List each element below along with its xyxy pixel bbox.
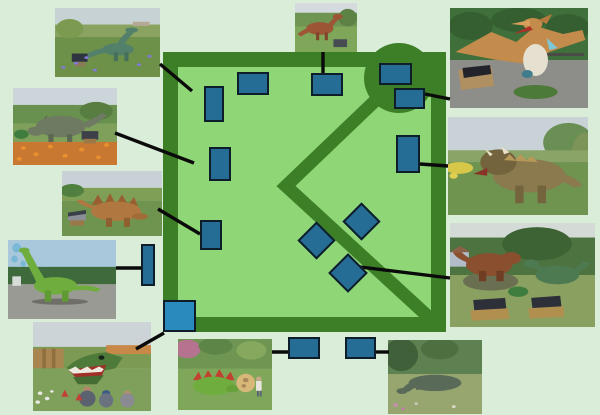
photo-brachiosaurus bbox=[8, 240, 116, 319]
marker-diamond-1 bbox=[342, 202, 380, 240]
marker-right-2 bbox=[396, 135, 420, 173]
marker-bottom-1 bbox=[288, 337, 320, 359]
connector-lines bbox=[0, 0, 600, 415]
photo-pteranodon bbox=[450, 8, 588, 108]
marker-corner-gate bbox=[163, 300, 196, 332]
line-ankylosaurus bbox=[115, 133, 194, 163]
photo-triceratops bbox=[448, 117, 588, 215]
photo-ankylosaurus bbox=[13, 88, 117, 165]
marker-top-1 bbox=[237, 72, 269, 95]
photo-dinosaur-pair bbox=[450, 223, 595, 327]
dinosaur-park-map-infographic bbox=[0, 0, 600, 415]
photo-stegosaurus bbox=[62, 171, 162, 236]
marker-top-2 bbox=[311, 73, 343, 96]
photo-trex-head bbox=[33, 322, 151, 411]
location-markers bbox=[0, 0, 600, 415]
map-outer-border bbox=[163, 52, 446, 332]
marker-outside-left bbox=[141, 244, 155, 286]
line-trex-gate bbox=[136, 333, 164, 349]
line-dino-pair bbox=[352, 266, 450, 278]
marker-diamond-3 bbox=[328, 253, 368, 293]
line-pteranodon bbox=[425, 94, 450, 99]
map-plaza-circle bbox=[364, 43, 434, 113]
line-triceratops bbox=[420, 164, 448, 166]
marker-top-left bbox=[204, 86, 224, 122]
photo-dilophosaurus bbox=[55, 8, 160, 77]
marker-left-2 bbox=[200, 220, 222, 250]
photo-stegosaurus-playground bbox=[178, 339, 272, 410]
marker-plaza-circle bbox=[379, 63, 412, 85]
marker-bottom-2 bbox=[345, 337, 376, 359]
marker-right-1 bbox=[394, 88, 425, 109]
line-stegosaurus bbox=[158, 209, 200, 234]
line-dilophosaurus bbox=[160, 64, 192, 91]
photo-lying-dinosaur bbox=[388, 340, 482, 414]
marker-diamond-2 bbox=[297, 221, 335, 259]
map-lawn bbox=[178, 67, 431, 317]
photo-callouts bbox=[0, 0, 600, 415]
photo-carnotaurus bbox=[295, 3, 357, 52]
park-map bbox=[0, 0, 600, 415]
map-diagonal-path bbox=[286, 78, 433, 321]
marker-left-1 bbox=[209, 147, 231, 181]
